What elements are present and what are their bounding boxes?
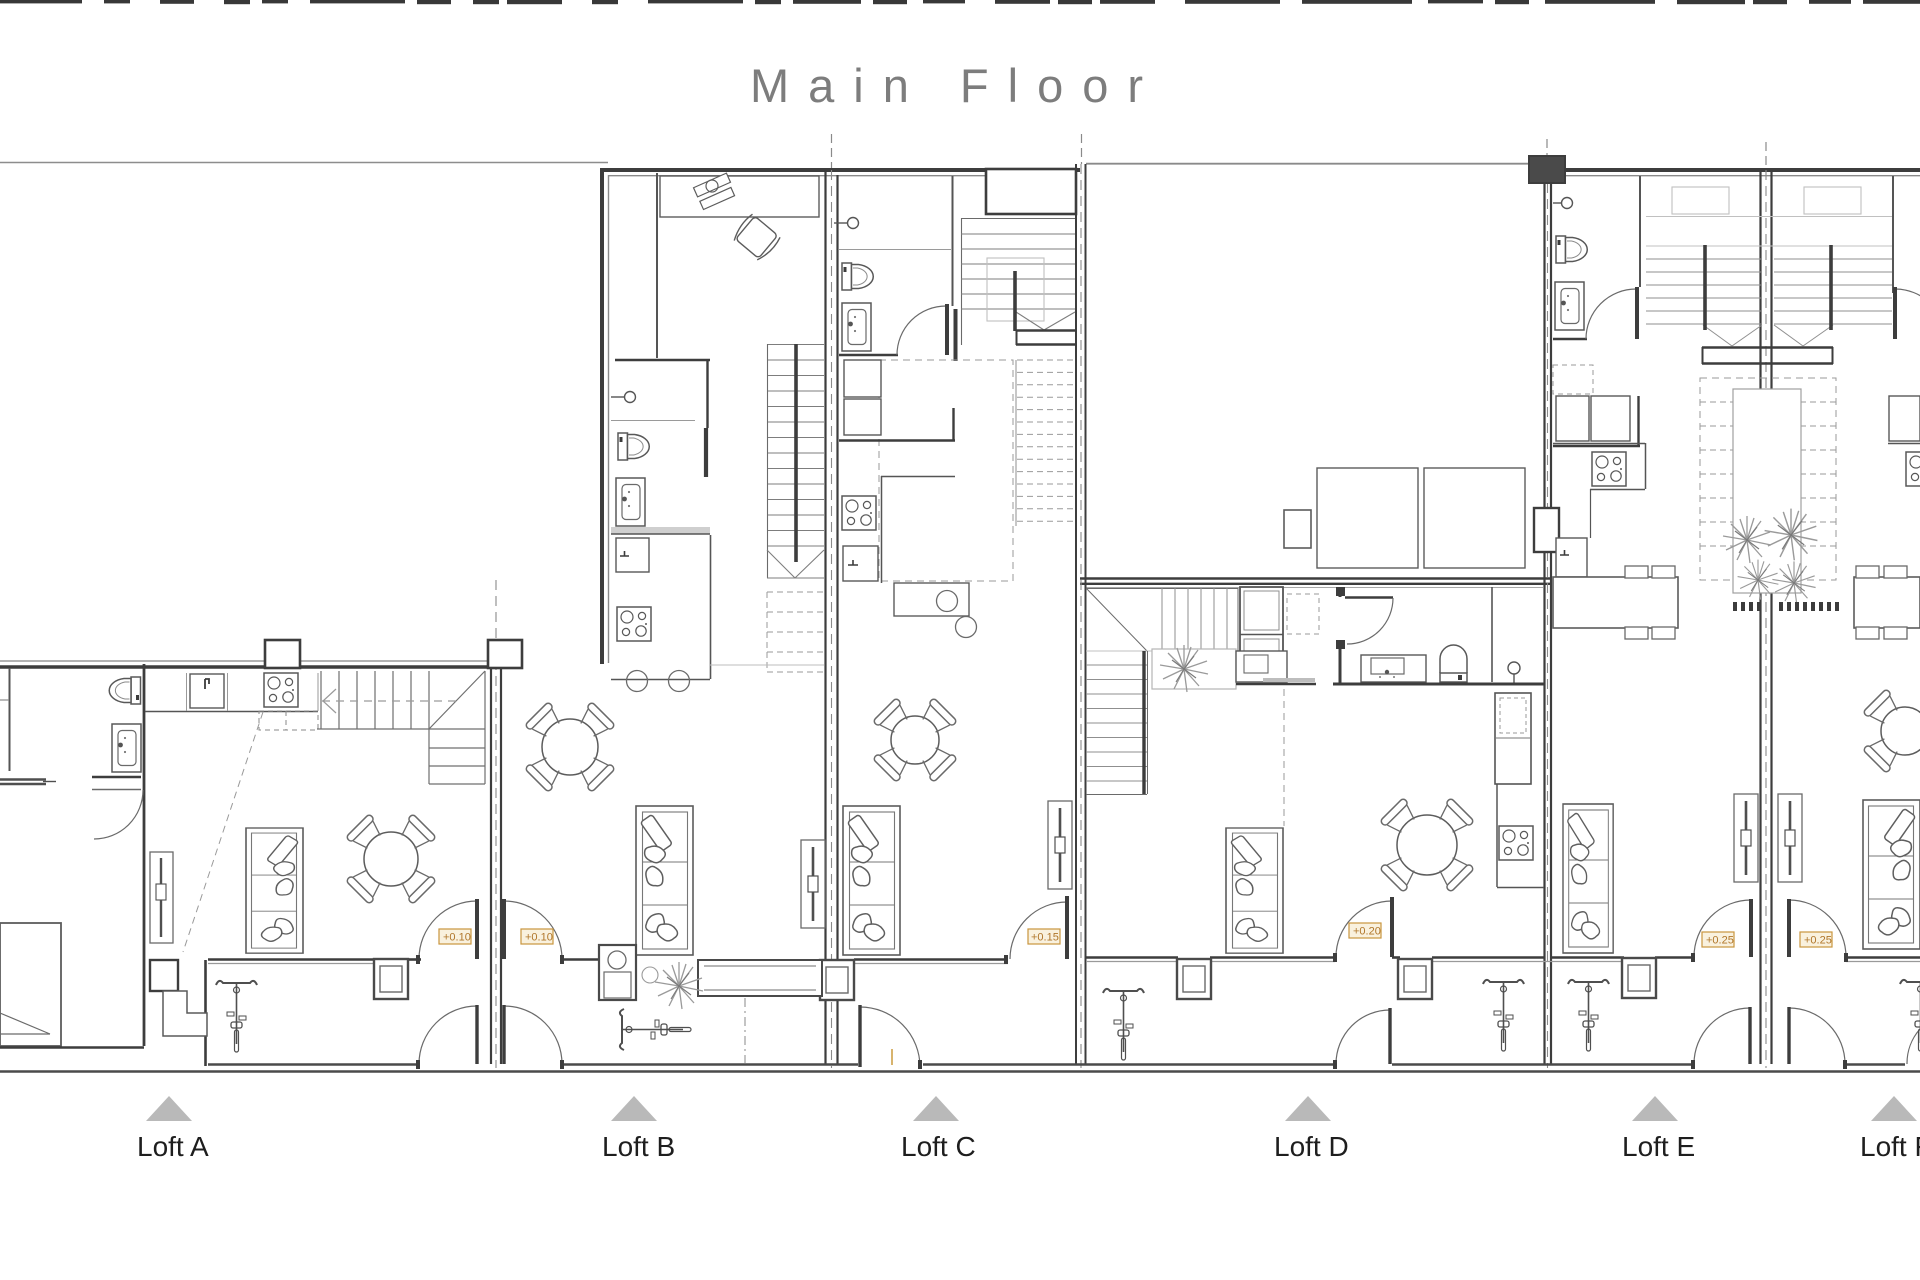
svg-text:Main Floor: Main Floor — [750, 59, 1162, 112]
svg-text:Loft B: Loft B — [602, 1131, 675, 1162]
svg-text:+0.25: +0.25 — [1804, 935, 1832, 947]
svg-text:+0.25: +0.25 — [1706, 935, 1734, 947]
svg-text:Loft F: Loft F — [1860, 1131, 1920, 1162]
svg-text:Loft E: Loft E — [1622, 1131, 1695, 1162]
svg-text:Loft D: Loft D — [1274, 1131, 1349, 1162]
svg-text:+0.10: +0.10 — [525, 932, 553, 944]
svg-text:+0.15: +0.15 — [1031, 932, 1059, 944]
svg-text:+0.10: +0.10 — [443, 932, 471, 944]
svg-text:Loft A: Loft A — [137, 1131, 209, 1162]
svg-text:+0.20: +0.20 — [1353, 926, 1381, 938]
svg-text:Loft C: Loft C — [901, 1131, 976, 1162]
